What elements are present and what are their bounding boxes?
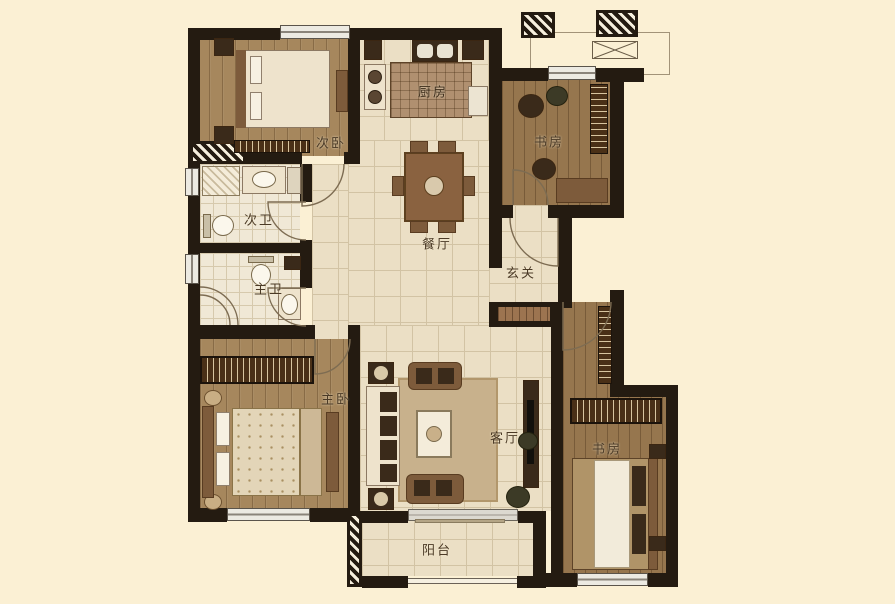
wall: [545, 573, 577, 587]
pillow: [250, 56, 262, 84]
wall: [300, 240, 312, 288]
window: [548, 66, 596, 80]
chaise-cushion: [414, 480, 430, 496]
bed-headboard: [648, 458, 658, 570]
lamp-icon: [374, 366, 388, 380]
plant-icon: [506, 486, 530, 508]
plant-icon: [518, 432, 538, 450]
floor-plan: 次卧 厨房 书房 次卫 主卫 餐厅 玄关 主卧 客厅 书房 阳台: [0, 0, 895, 604]
pillow: [632, 514, 646, 554]
wall: [360, 511, 408, 523]
room-label-dining: 餐厅: [422, 234, 452, 253]
armchair-cushion: [438, 368, 454, 384]
room-label-bedroom-second: 次卧: [316, 133, 346, 152]
wall: [362, 576, 408, 588]
column-hatch: [347, 513, 362, 587]
toilet-icon: [248, 256, 274, 263]
wall: [610, 68, 624, 218]
wall: [489, 218, 502, 268]
wall: [610, 290, 624, 397]
bookshelf-icon: [590, 84, 608, 154]
chair: [392, 176, 404, 196]
bed-bench: [326, 412, 339, 492]
kitchen-appliance: [364, 40, 382, 60]
wall: [502, 205, 513, 218]
pillow: [216, 452, 230, 486]
wall: [196, 243, 306, 253]
fridge-icon: [468, 86, 488, 116]
nightstand: [649, 444, 666, 459]
wall: [188, 508, 227, 522]
desk-icon: [556, 178, 608, 203]
window: [185, 168, 199, 196]
bed-foot-runner: [300, 408, 322, 496]
shower-icon: [202, 166, 240, 196]
room-label-living: 客厅: [490, 428, 520, 447]
bath-cabinet: [284, 256, 301, 270]
side-table: [204, 390, 222, 406]
lamp-icon: [374, 492, 388, 506]
wall: [666, 385, 678, 585]
wall: [648, 573, 678, 587]
pillow: [216, 412, 230, 446]
wardrobe-icon: [200, 356, 314, 384]
bed-duvet: [594, 460, 630, 568]
wall: [348, 28, 360, 164]
clothes-rack-icon: [598, 306, 612, 384]
ac-unit-box: [592, 41, 638, 59]
washing-machine-icon: [287, 167, 301, 194]
bed-icon: [232, 408, 300, 496]
nightstand: [214, 126, 234, 144]
chair: [410, 221, 428, 233]
wall: [188, 28, 280, 40]
pillow: [632, 466, 646, 506]
balcony-rail: [415, 519, 505, 523]
room-label-foyer: 玄关: [506, 263, 536, 282]
column-hatch: [596, 10, 638, 37]
sink-basin: [417, 44, 433, 58]
chair: [438, 221, 456, 233]
wall: [517, 576, 546, 588]
bed-headboard: [202, 406, 214, 498]
dresser: [336, 70, 348, 112]
plate: [424, 176, 444, 196]
chair: [463, 176, 475, 196]
burner: [368, 70, 382, 84]
desk-chair: [532, 158, 556, 180]
wall: [551, 302, 563, 573]
office-chair: [518, 94, 544, 118]
sofa-cushion: [380, 440, 397, 460]
bed-headboard: [236, 50, 246, 128]
room-label-study-top: 书房: [534, 132, 564, 151]
nightstand: [649, 536, 666, 551]
washbasin-icon: [252, 171, 276, 188]
window: [185, 254, 199, 284]
window: [577, 573, 648, 586]
plant-icon: [546, 86, 568, 106]
wall: [548, 205, 624, 218]
burner: [368, 90, 382, 104]
wall: [350, 28, 501, 40]
window: [280, 25, 350, 39]
sofa-cushion: [380, 416, 397, 436]
column-hatch: [521, 12, 555, 38]
pillow: [250, 92, 262, 120]
shoe-cabinet: [498, 307, 550, 321]
room-label-kitchen: 厨房: [418, 82, 448, 101]
wall: [502, 68, 548, 81]
wall: [188, 325, 315, 339]
clothes-rack-icon: [570, 398, 662, 424]
wall: [348, 325, 360, 522]
nightstand: [214, 38, 234, 56]
chair: [410, 141, 428, 153]
room-label-bath-master: 主卫: [254, 279, 284, 298]
window: [227, 508, 310, 521]
armchair-cushion: [416, 368, 432, 384]
chair: [438, 141, 456, 153]
chaise-cushion: [436, 480, 452, 496]
toilet-bowl: [212, 215, 234, 236]
wall: [300, 164, 312, 202]
room-label-study-bottom: 书房: [592, 439, 622, 458]
toilet-icon: [203, 214, 211, 238]
room-label-bedroom-master: 主卧: [321, 389, 351, 408]
sink-basin: [437, 44, 453, 58]
floor-corridor: [312, 164, 348, 339]
wall: [558, 218, 572, 308]
balcony-glazing: [408, 578, 517, 584]
wardrobe-icon: [234, 140, 310, 153]
kitchen-appliance: [462, 40, 484, 60]
sofa-cushion: [380, 392, 397, 412]
wall: [489, 28, 502, 218]
room-label-bath-second: 次卫: [244, 210, 274, 229]
table-tray: [426, 426, 442, 442]
sofa-cushion: [380, 464, 397, 482]
room-label-balcony: 阳台: [422, 540, 452, 559]
